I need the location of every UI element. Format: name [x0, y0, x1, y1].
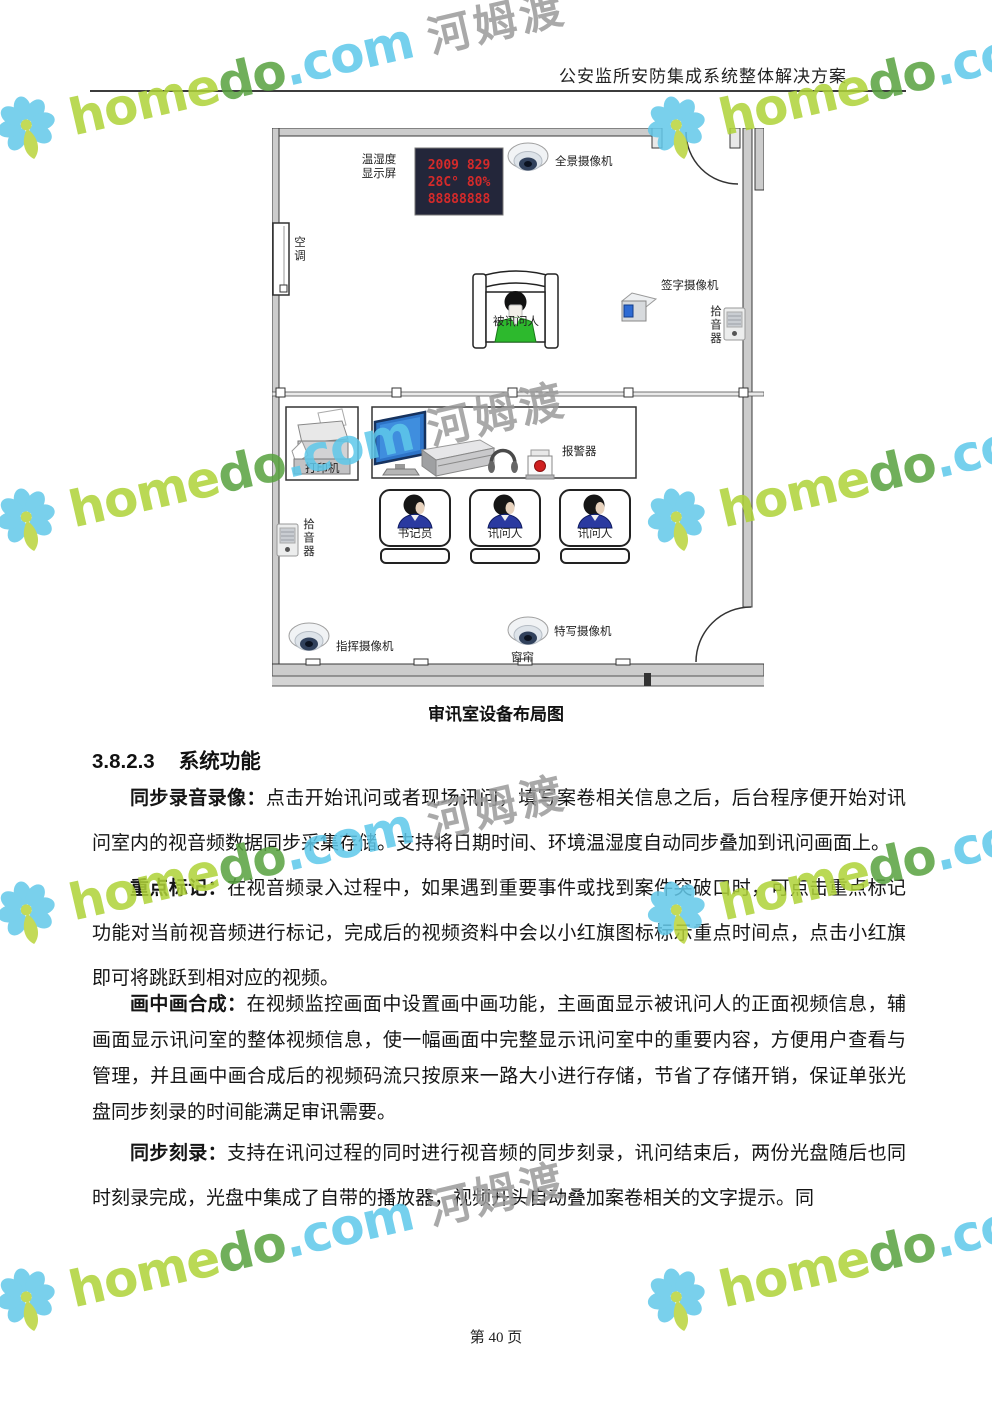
paragraph-key-marking: 重点标记：在视音频录入过程中，如果遇到重要事件或找到案件突破口时，可点击重点标记…	[92, 866, 906, 1001]
closeup-dome-camera-icon	[508, 617, 548, 645]
label-alarm: 报警器	[562, 445, 597, 459]
label-pickup-lower: 拾音器	[301, 518, 315, 559]
body-text: 同步录音录像：点击开始讯问或者现场讯问，填写案卷相关信息之后，后台程序便开始对讯…	[92, 776, 906, 1221]
section-heading: 3.8.2.3系统功能	[92, 744, 261, 774]
label-panoramic-camera: 全景摄像机	[555, 155, 613, 169]
svg-text:2009 829: 2009 829	[428, 158, 491, 173]
label-curtain: 窗帘	[511, 651, 534, 665]
watermark-text: homedo.com河姆渡	[64, 0, 570, 143]
label-command-camera: 指挥摄像机	[336, 640, 394, 654]
paragraph-lead: 同步刻录：	[130, 1143, 227, 1164]
pickup-speaker-lower-icon	[277, 524, 298, 556]
paragraph-lead: 重点标记：	[130, 878, 227, 899]
section-number: 3.8.2.3	[92, 750, 155, 773]
label-interrogator-1: 讯问人	[468, 527, 542, 541]
paragraph-sync-recording: 同步录音录像：点击开始讯问或者现场讯问，填写案卷相关信息之后，后台程序便开始对讯…	[92, 776, 906, 866]
paragraph-pip-composition: 画中画合成：在视频监控画面中设置画中画功能，主画面显示被讯问人的正面视频信息，辅…	[92, 987, 906, 1131]
document-page: 公安监所安防集成系统整体解决方案	[0, 0, 992, 1403]
diagram-caption: 审讯室设备布局图	[0, 700, 992, 725]
door-post	[652, 128, 662, 148]
door-post	[730, 128, 740, 148]
chair-back	[471, 549, 539, 563]
air-conditioner-icon	[273, 223, 289, 295]
paragraph-lead: 画中画合成：	[130, 994, 246, 1015]
command-dome-camera-icon	[289, 623, 329, 651]
section-title: 系统功能	[179, 750, 261, 773]
svg-text:28C° 80%: 28C° 80%	[428, 175, 491, 190]
label-interrogator-2: 讯问人	[558, 527, 632, 541]
page-number: 第 40 页	[0, 1326, 992, 1347]
dvr-icon	[422, 440, 494, 476]
label-closeup-camera: 特写摄像机	[554, 625, 612, 639]
label-signature-camera: 签字摄像机	[661, 279, 719, 293]
header-rule	[90, 90, 906, 92]
chair-back	[561, 549, 629, 563]
paragraph-lead: 同步录音录像：	[130, 788, 266, 809]
interrogated-person-chair	[473, 271, 558, 348]
label-air-conditioner: 空调	[292, 236, 306, 263]
flower-logo-icon	[0, 480, 66, 561]
label-interrogated-person: 被讯问人	[484, 315, 548, 329]
flower-logo-icon	[0, 873, 66, 954]
led-display: 2009 829 28C° 80% 88888888	[415, 148, 503, 215]
interrogation-room-diagram: 2009 829 28C° 80% 88888888	[272, 128, 764, 688]
label-pickup-upper: 拾音器	[708, 305, 722, 346]
flower-logo-icon	[0, 88, 66, 169]
paragraph-sync-burning: 同步刻录：支持在讯问过程的同时进行视音频的同步刻录，讯问结束后，两份光盘随后也同…	[92, 1131, 906, 1221]
signature-box-camera-icon	[622, 293, 656, 321]
panoramic-dome-camera-icon	[508, 143, 548, 171]
door-arc-bottom	[696, 607, 751, 662]
alarm-button-icon	[526, 450, 554, 479]
monitor-icon	[375, 412, 425, 475]
headphones-icon	[488, 451, 518, 474]
door-hinge	[644, 673, 651, 686]
document-header-title: 公安监所安防集成系统整体解决方案	[559, 62, 847, 87]
label-clerk: 书记员	[378, 527, 452, 541]
label-printer: 打印机	[305, 462, 340, 476]
pickup-speaker-upper-icon	[724, 308, 745, 340]
svg-text:88888888: 88888888	[428, 192, 491, 207]
chair-back	[381, 549, 449, 563]
led-display-label: 温湿度 显示屏	[356, 153, 402, 181]
